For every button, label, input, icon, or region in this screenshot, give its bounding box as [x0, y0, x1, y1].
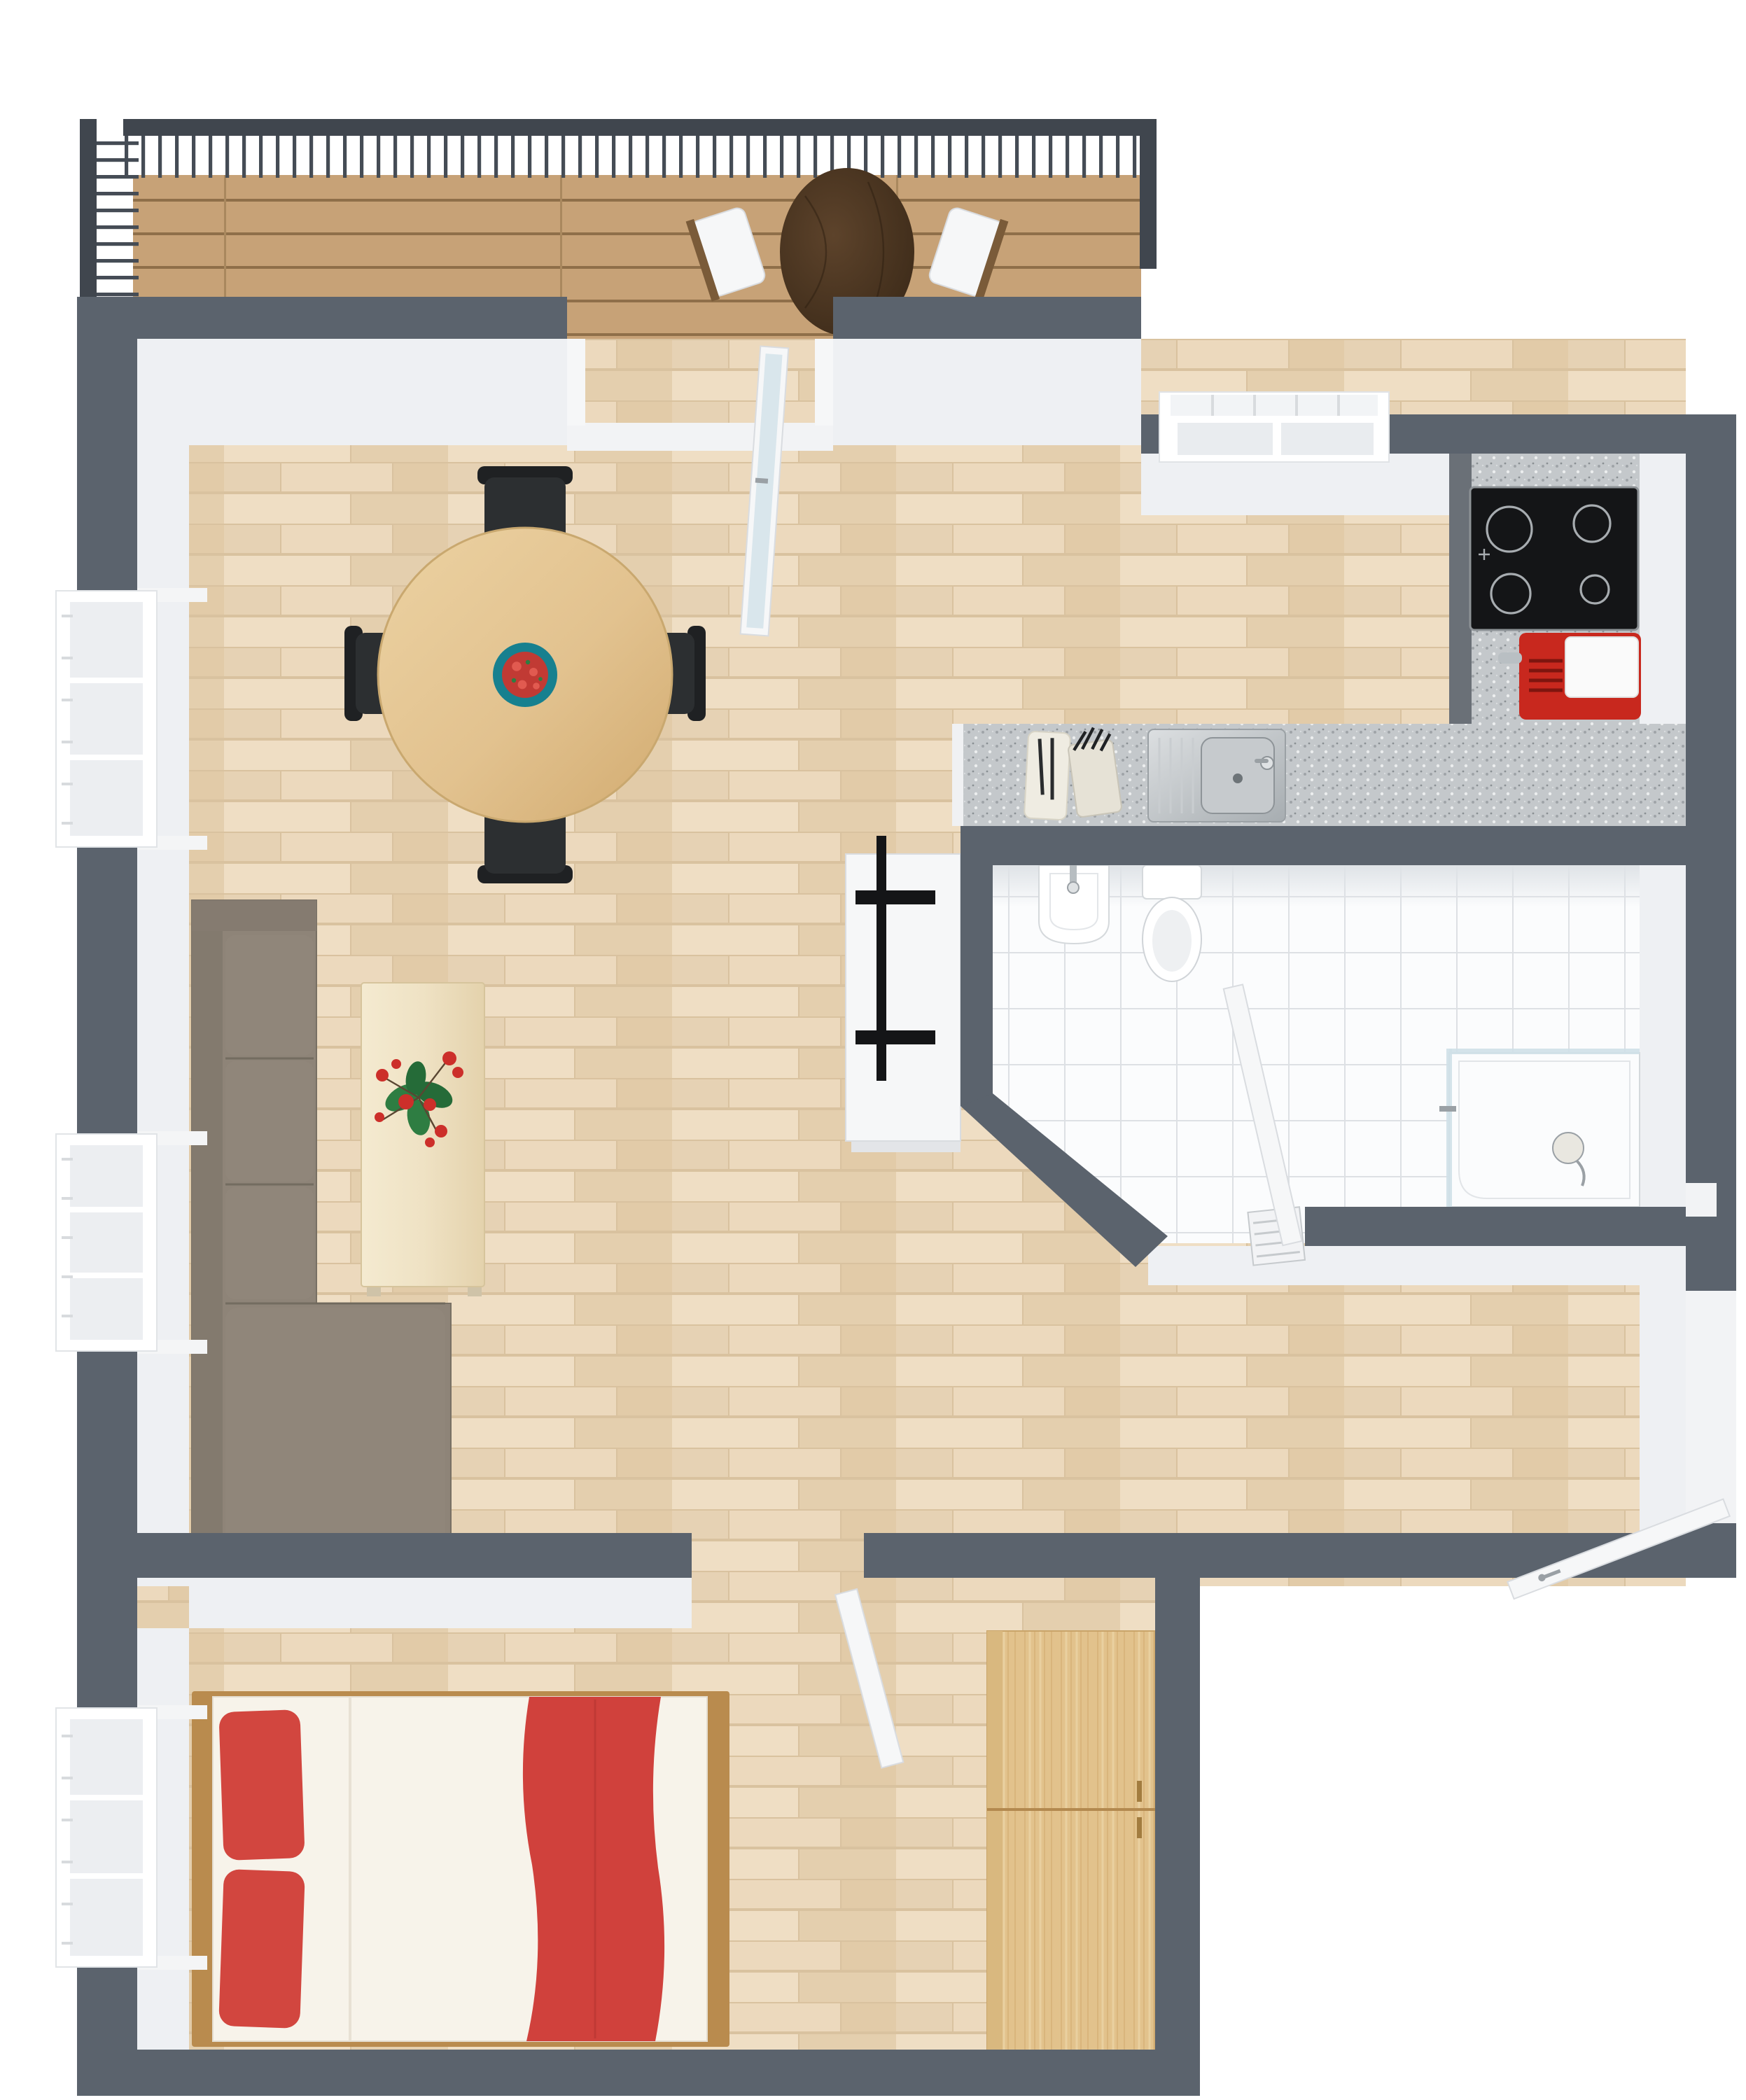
shower-head [1553, 1133, 1584, 1163]
sofa-backrest [192, 931, 223, 1575]
entry-door-frame [1686, 1291, 1736, 1523]
toilet [1143, 846, 1201, 981]
red-appliance [1498, 633, 1641, 720]
red-pillow [218, 1869, 305, 2029]
balcony-railing-balusters [123, 136, 1148, 178]
wardrobe-handle [1137, 1817, 1142, 1838]
kitchen-tall-cabinet-side [1449, 454, 1472, 724]
sofa-cushion [225, 935, 314, 1056]
toilet-seat [1152, 910, 1192, 972]
kitchen-sink [1148, 729, 1285, 822]
wall-bathroom-left [961, 826, 993, 1106]
coffee-table-group [361, 983, 484, 1296]
double-bed [192, 1691, 729, 2047]
sofa-cushion [225, 1187, 314, 1299]
wardrobe-body [987, 1631, 1155, 2076]
wall-top-right [833, 297, 1141, 339]
shower-glass-side [1446, 1049, 1452, 1207]
wall-living-bedroom [77, 1533, 692, 1578]
wardrobe [987, 1631, 1155, 2076]
cutting-board [1024, 731, 1070, 820]
cooktop [1470, 487, 1638, 630]
strawberries [502, 652, 548, 698]
wall-utility-nub [1686, 1183, 1717, 1217]
appliance-spout [1498, 652, 1522, 664]
sofa-cushion [225, 1061, 314, 1182]
shower-glass-front [1449, 1049, 1640, 1054]
window-kitchen [1159, 392, 1389, 462]
balcony-door-handle [755, 478, 768, 484]
balcony-railing-right-bar [1140, 119, 1157, 269]
shower-tray [1449, 1053, 1640, 1207]
red-runner-blanket [523, 1697, 664, 2041]
wall-bedroom-bottom [77, 2050, 1200, 2096]
tv-sideboard-group [846, 836, 961, 1152]
sofa-armrest [192, 900, 316, 931]
balcony-door-jamb [567, 339, 585, 426]
kitchen-counter-end-panel [952, 724, 963, 826]
wardrobe-side-panel [987, 1631, 1003, 2076]
shower-door-handle [1439, 1106, 1456, 1112]
bedroom [192, 1631, 1155, 2076]
wall-bathroom-bottom [1305, 1207, 1686, 1246]
wall-bathroom-top [961, 826, 1686, 865]
wardrobe-handle [1137, 1781, 1142, 1802]
cistern [1143, 865, 1201, 899]
sofa-chaise-cushion [225, 1308, 445, 1569]
balcony-door-jamb [815, 339, 833, 426]
balcony-door-threshold [567, 423, 833, 451]
wash-basin [1039, 865, 1109, 944]
floor-plan-canvas [0, 0, 1746, 2100]
shower [1439, 1049, 1640, 1207]
wall-top-left [77, 297, 567, 339]
red-pillow [218, 1709, 305, 1861]
balcony-railing-top-bar [123, 119, 1148, 136]
wall-bedroom-right [1155, 1533, 1200, 2096]
